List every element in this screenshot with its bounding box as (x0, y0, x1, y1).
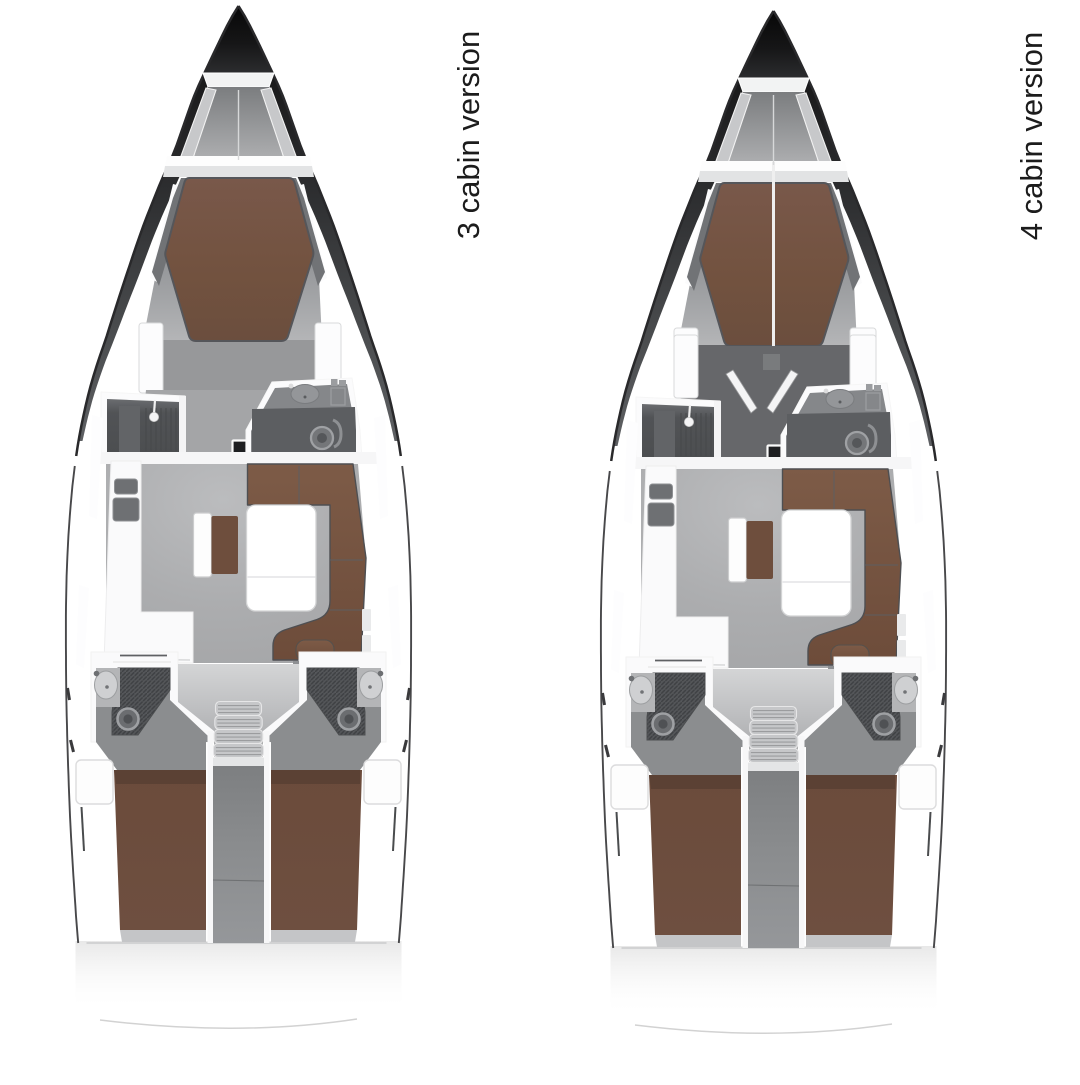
svg-text:4 cabin version: 4 cabin version (1014, 32, 1049, 241)
svg-text:3 cabin version: 3 cabin version (451, 31, 486, 240)
